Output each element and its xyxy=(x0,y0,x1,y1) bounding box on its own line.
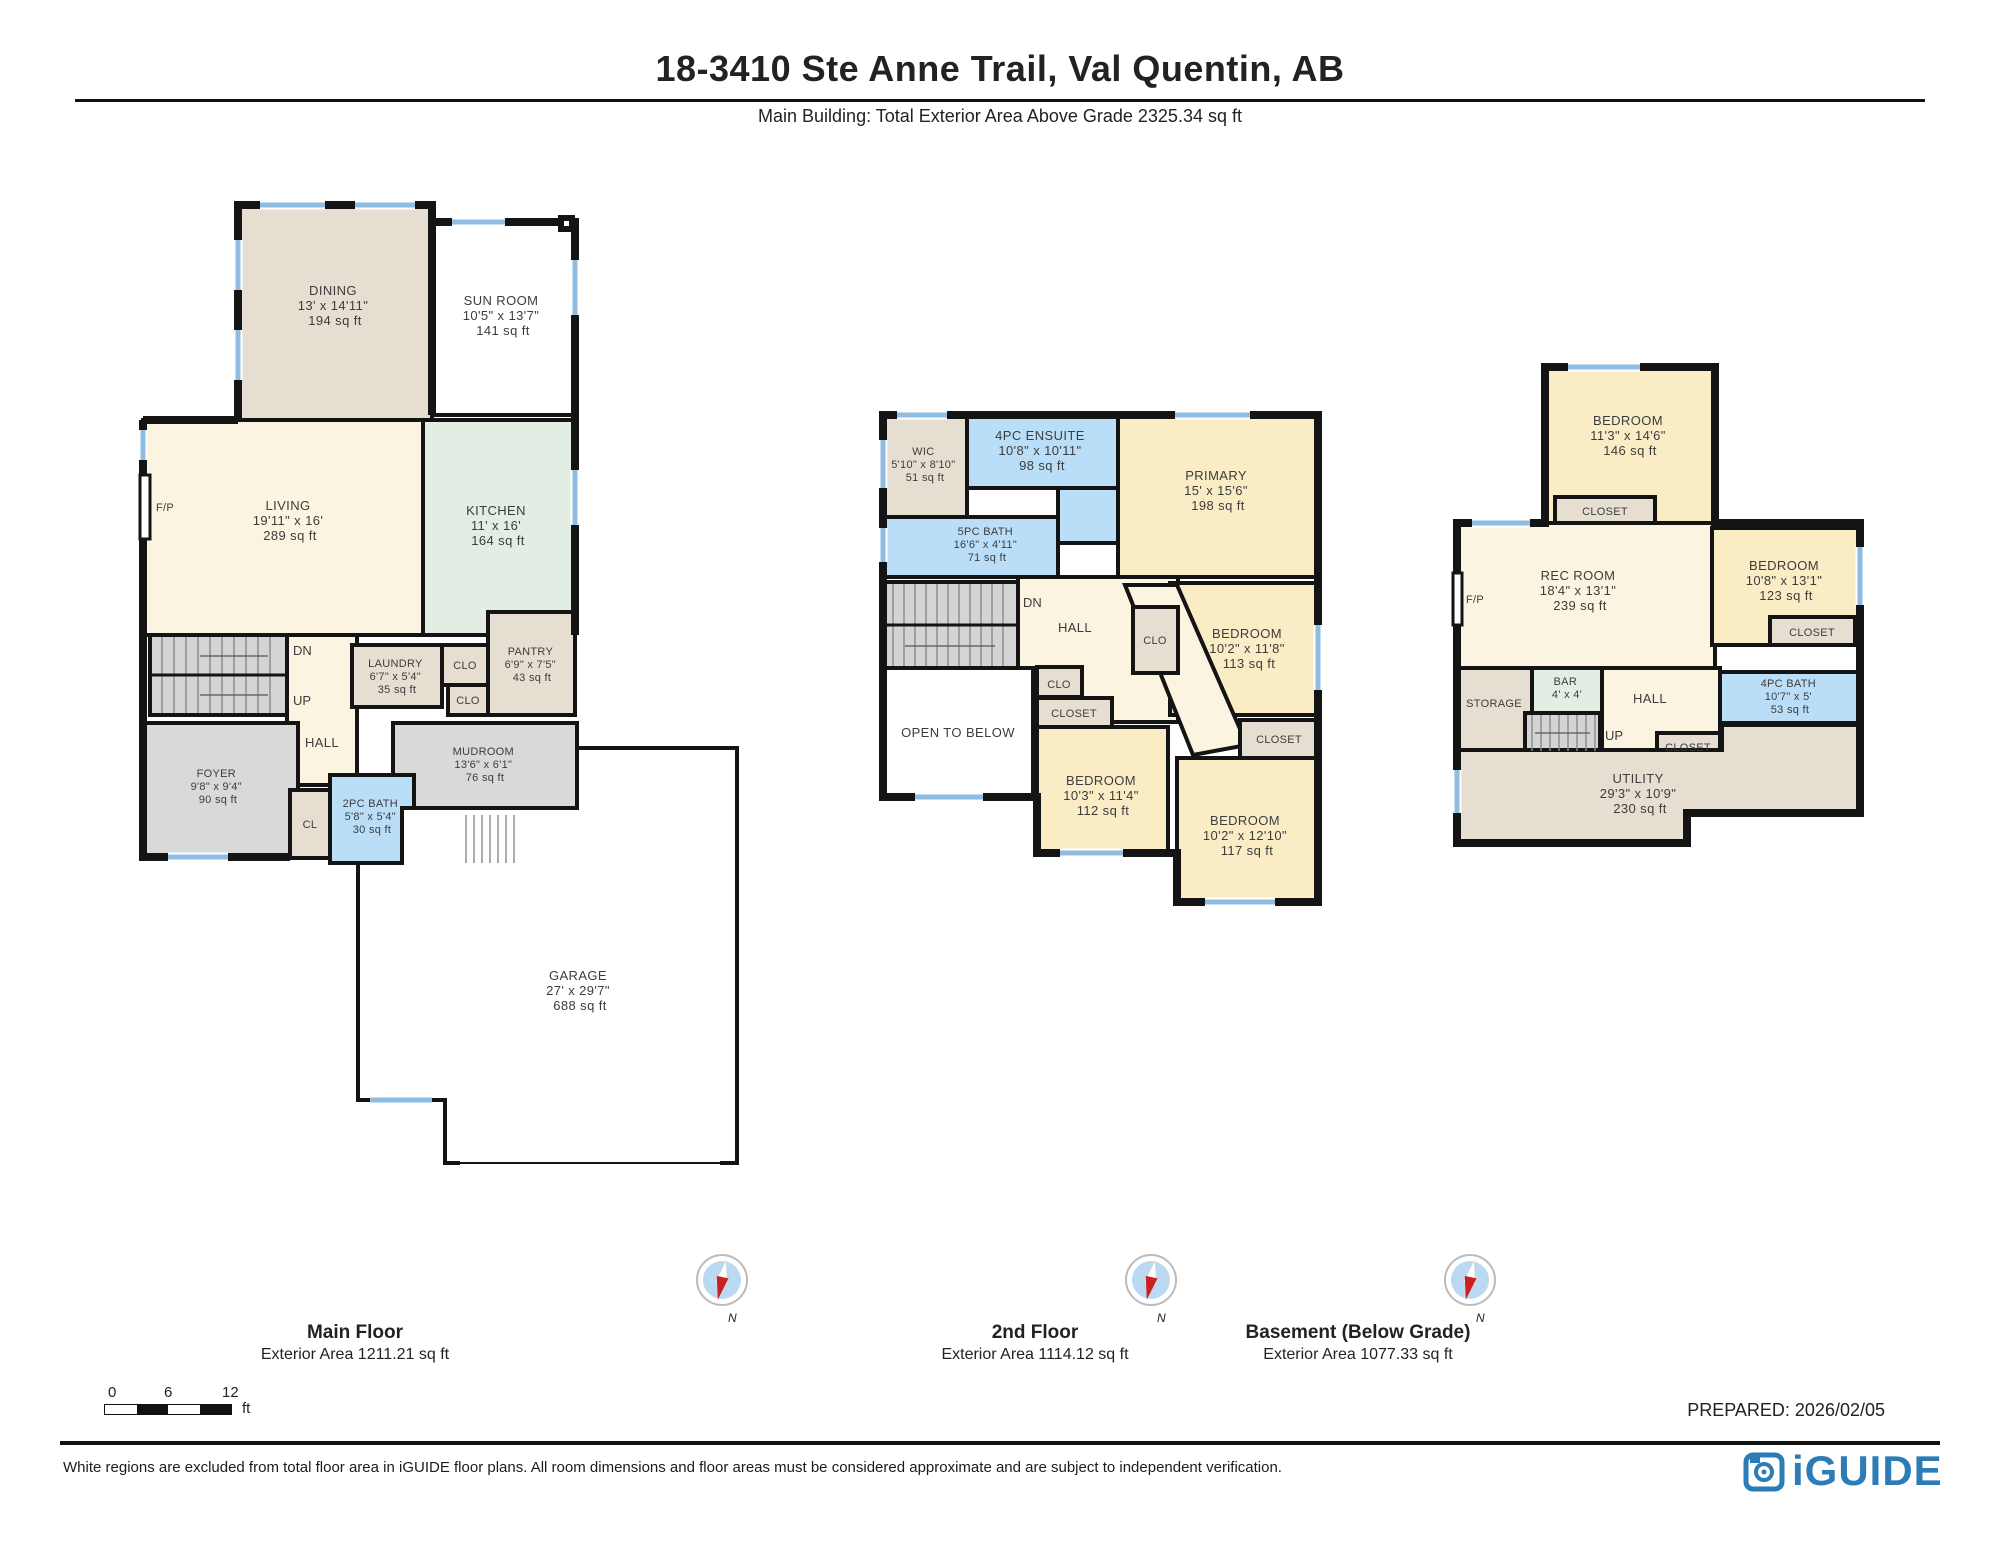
basement-plan: BEDROOM 11'3" x 14'6" 146 sq ft REC ROOM… xyxy=(1440,355,1890,1025)
label-hall-2nd: HALL xyxy=(1058,620,1092,635)
camera-marker xyxy=(558,215,575,232)
label-up-main: UP xyxy=(293,693,311,708)
label-cl: CL xyxy=(303,819,318,831)
label-closet-top: CLOSET xyxy=(1582,506,1628,518)
caption-main-floor: Main Floor Exterior Area 1211.21 sq ft xyxy=(145,1322,565,1364)
label-pantry: PANTRY 6'9" x 7'5" 43 sq ft xyxy=(505,646,560,684)
compass-main: N xyxy=(692,1252,752,1328)
room-ensuite-ext xyxy=(1058,488,1118,543)
label-up-bsmt: UP xyxy=(1605,728,1623,743)
footer-divider xyxy=(60,1441,1940,1445)
floor-plan-page: 18-3410 Ste Anne Trail, Val Quentin, AB … xyxy=(0,0,2000,1545)
floor-name: Main Floor xyxy=(145,1322,565,1344)
label-closet-r: CLOSET xyxy=(1256,734,1302,746)
label-clo-r: CLO xyxy=(1143,635,1167,647)
brand-name: iGUIDE xyxy=(1792,1447,1943,1495)
scale-seg xyxy=(105,1405,137,1414)
iguide-logo-icon xyxy=(1742,1449,1786,1493)
label-closet-l: CLOSET xyxy=(1051,708,1097,720)
label-dn-main: DN xyxy=(293,643,312,658)
label-primary: PRIMARY 15' x 15'6" 198 sq ft xyxy=(1184,468,1252,513)
prepared-date: PREPARED: 2026/02/05 xyxy=(1400,1400,1885,1421)
label-closet-mid: CLOSET xyxy=(1789,627,1835,639)
label-hall-main: HALL xyxy=(305,735,339,750)
compass-bsmt: N xyxy=(1440,1252,1500,1328)
label-dn-2nd: DN xyxy=(1023,595,1042,610)
page-title: 18-3410 Ste Anne Trail, Val Quentin, AB xyxy=(0,48,2000,90)
label-garage: GARAGE 27' x 29'7" 688 sq ft xyxy=(546,968,614,1013)
label-clo2: CLO xyxy=(456,695,480,707)
scale-seg xyxy=(137,1405,169,1414)
title-divider xyxy=(75,99,1925,102)
label-closet-bot: CLOSET xyxy=(1665,742,1711,754)
floor-area: Exterior Area 1211.21 sq ft xyxy=(145,1346,565,1364)
label-clo1: CLO xyxy=(453,660,477,672)
disclaimer-text: White regions are excluded from total fl… xyxy=(63,1459,1563,1476)
label-open-below: OPEN TO BELOW xyxy=(901,725,1015,740)
scale-bar: 0 6 12 ft xyxy=(104,1384,274,1424)
label-kitchen: KITCHEN 11' x 16' 164 sq ft xyxy=(466,503,530,548)
caption-basement: Basement (Below Grade) Exterior Area 107… xyxy=(1148,1322,1568,1364)
scale-bar-segments xyxy=(104,1404,232,1415)
label-hall-bsmt: HALL xyxy=(1633,691,1667,706)
fireplace-main xyxy=(140,475,150,539)
compass-2nd: N xyxy=(1121,1252,1181,1328)
scale-seg xyxy=(200,1405,232,1414)
scale-tick-0: 0 xyxy=(108,1384,116,1401)
label-clo-s: CLO xyxy=(1047,679,1071,691)
label-bar: BAR 4' x 4' xyxy=(1552,676,1582,701)
second-floor-plan: WIC 5'10" x 8'10" 51 sq ft 4PC ENSUITE 1… xyxy=(875,400,1335,1000)
compass-n-label: N xyxy=(728,1311,737,1325)
label-foyer: FOYER 9'8" x 9'4" 90 sq ft xyxy=(191,768,246,806)
label-fp-bsmt: F/P xyxy=(1466,594,1484,606)
scale-seg xyxy=(168,1405,200,1414)
floor-name: Basement (Below Grade) xyxy=(1148,1322,1568,1344)
page-subtitle: Main Building: Total Exterior Area Above… xyxy=(0,106,2000,127)
scale-tick-6: 6 xyxy=(164,1384,172,1401)
fireplace-bsmt xyxy=(1453,573,1462,625)
brand-logo: iGUIDE xyxy=(1742,1447,1943,1495)
label-storage: STORAGE xyxy=(1466,698,1522,710)
scale-tick-12: 12 xyxy=(222,1384,239,1401)
floor-area: Exterior Area 1077.33 sq ft xyxy=(1148,1346,1568,1364)
main-floor-plan: DINING 13' x 14'11" 194 sq ft SUN ROOM 1… xyxy=(140,195,780,1175)
scale-unit: ft xyxy=(242,1400,250,1417)
label-fp-main: F/P xyxy=(156,502,174,514)
